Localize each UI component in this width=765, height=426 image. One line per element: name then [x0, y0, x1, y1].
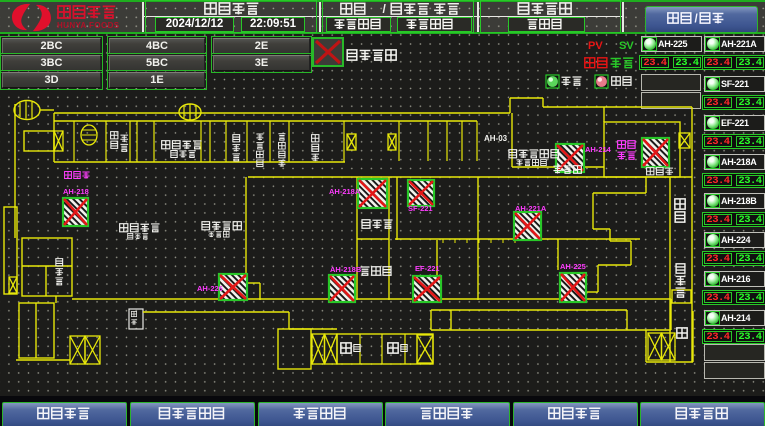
svg-text:HUNYA FOODS: HUNYA FOODS	[57, 21, 120, 30]
svg-text:AH-221A: AH-221A	[515, 204, 547, 213]
svg-text:AH-226: AH-226	[197, 284, 223, 293]
svg-text:AH-218B: AH-218B	[330, 265, 362, 274]
svg-text:PV: PV	[588, 40, 603, 52]
svg-text:/: /	[383, 2, 387, 16]
svg-text:AH-03: AH-03	[484, 134, 508, 143]
svg-text:SF-221: SF-221	[408, 204, 433, 213]
svg-text:EF-221: EF-221	[415, 264, 440, 273]
svg-text:AH-218A: AH-218A	[329, 187, 361, 196]
svg-text:/: /	[695, 14, 699, 26]
svg-text:AH-225: AH-225	[560, 262, 586, 271]
svg-text:AH-214: AH-214	[585, 145, 612, 154]
svg-text:SV: SV	[619, 40, 634, 52]
svg-text:AH-218: AH-218	[63, 187, 89, 196]
